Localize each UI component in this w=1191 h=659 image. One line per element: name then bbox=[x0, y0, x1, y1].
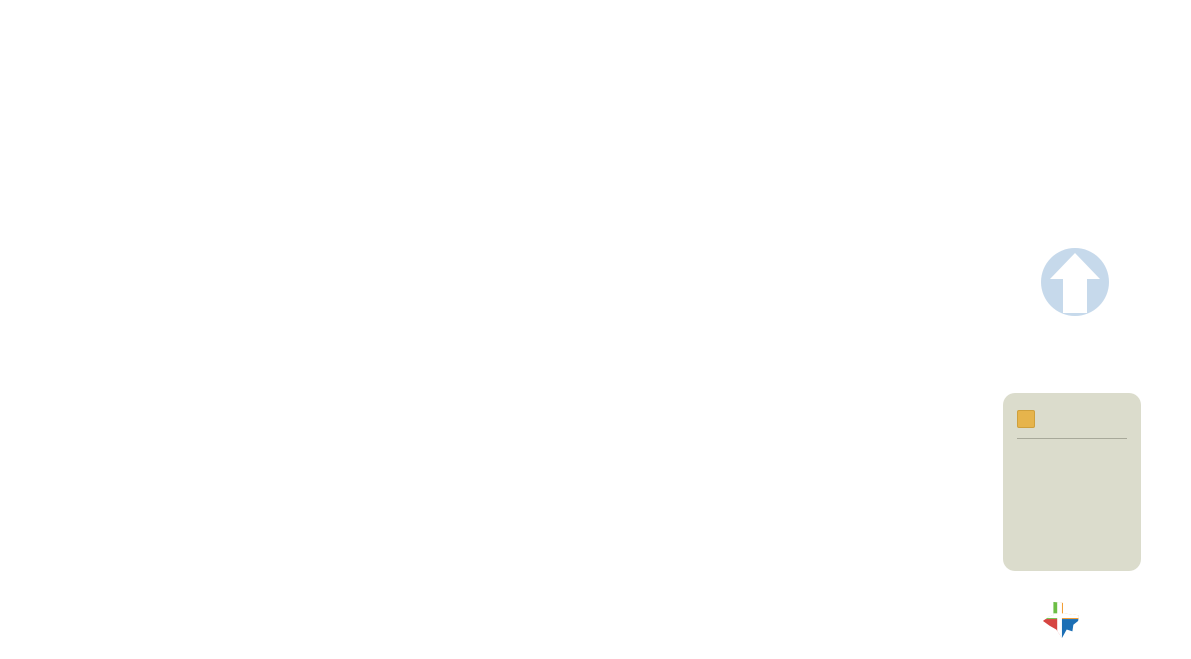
legend-panel bbox=[1003, 393, 1141, 571]
model-homes-swatch-icon bbox=[1017, 410, 1035, 428]
north-indicator bbox=[1038, 245, 1112, 332]
site-map-page bbox=[0, 0, 1191, 659]
texas-logo-icon bbox=[1042, 600, 1080, 640]
ctxmls-logo bbox=[1042, 600, 1086, 640]
legend-divider bbox=[1017, 438, 1127, 439]
legend-row-model-homes bbox=[1017, 405, 1127, 432]
north-arrow-icon bbox=[1038, 245, 1112, 319]
